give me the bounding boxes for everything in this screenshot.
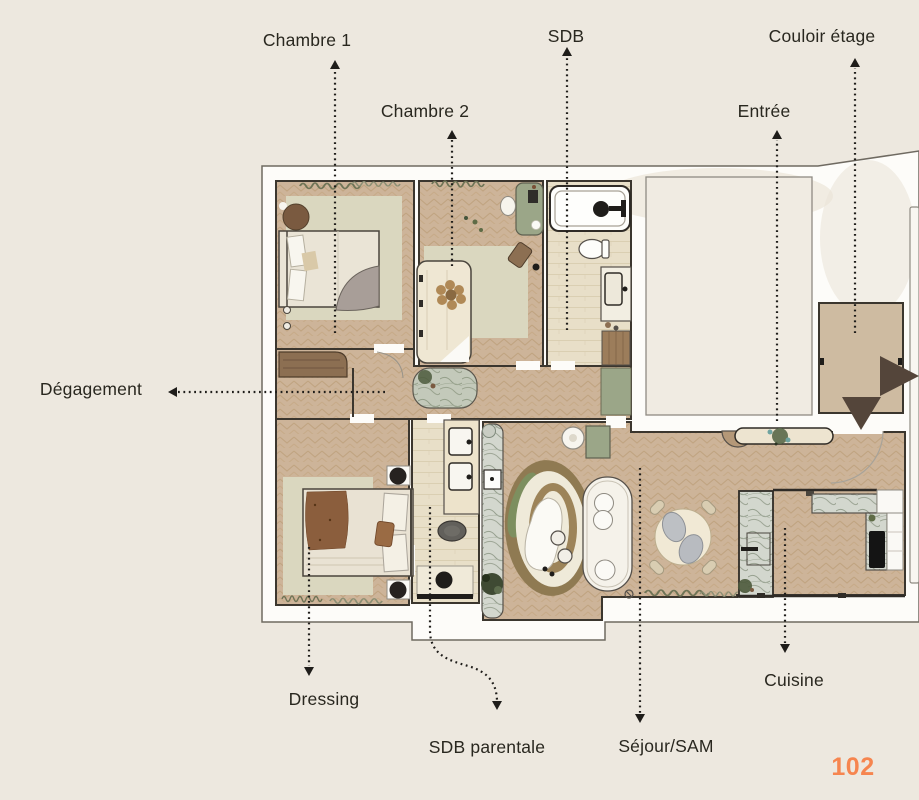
label-sdb-parentale: SDB parentale	[429, 738, 545, 757]
green-cabinet	[586, 426, 610, 458]
label-chambre-2: Chambre 2	[381, 102, 469, 121]
plant	[869, 515, 876, 522]
desk-monitor	[528, 190, 538, 203]
sofa	[583, 477, 632, 591]
label-degagement: Dégagement	[40, 380, 142, 399]
arrow-up-icon	[447, 130, 457, 139]
hall-door-leaf	[910, 207, 919, 583]
toilet	[579, 240, 609, 259]
bed-parentale	[303, 489, 413, 576]
daybed	[417, 261, 471, 363]
counter-top	[812, 494, 877, 513]
white-cabinet	[887, 513, 903, 570]
cooktop	[869, 531, 885, 568]
arrow-down-icon	[304, 667, 314, 676]
handle	[741, 547, 758, 551]
label-sejour-sam: Séjour/SAM	[618, 737, 713, 756]
wall-light	[284, 307, 291, 314]
marble-wall	[481, 424, 503, 618]
stool	[436, 572, 453, 589]
room-couloir-etage-landing	[819, 303, 903, 413]
white-cabinet	[877, 490, 903, 513]
arrow-down-icon	[635, 714, 645, 723]
label-chambre-1: Chambre 1	[263, 31, 351, 50]
plant	[772, 428, 788, 444]
shadow-blob	[820, 160, 916, 316]
wall-light	[284, 323, 291, 330]
arrow-down-icon	[492, 701, 502, 710]
page-number: 102	[831, 753, 874, 782]
label-cuisine: Cuisine	[764, 671, 824, 690]
plant	[418, 370, 432, 384]
label-entree: Entrée	[738, 102, 791, 121]
pillow	[287, 269, 306, 301]
cushion	[374, 521, 394, 547]
entree-furniture	[722, 428, 833, 447]
dining-set	[648, 499, 718, 577]
book-page: Chambre 1 Chambre 2 SDB Couloir étage En…	[0, 0, 919, 800]
desk-chair	[501, 197, 516, 216]
label-dressing: Dressing	[289, 690, 360, 709]
label-sdb: SDB	[548, 27, 585, 46]
stone-bench	[413, 368, 477, 408]
arrow-up-icon	[330, 60, 340, 69]
arrow-left-icon	[168, 387, 177, 397]
bed	[279, 231, 379, 311]
green-nook	[601, 368, 631, 415]
plant	[738, 579, 752, 593]
arrow-up-icon	[772, 130, 782, 139]
double-vanity	[444, 420, 479, 514]
arrow-up-icon	[562, 47, 572, 56]
stairwell-void	[646, 177, 812, 415]
lamp	[390, 582, 407, 599]
wardrobe	[279, 352, 347, 377]
label-couloir-etage: Couloir étage	[769, 27, 876, 46]
dressing-table	[417, 566, 473, 599]
arrow-up-icon	[850, 58, 860, 67]
round-side-table	[283, 204, 309, 230]
arrow-down-icon	[780, 644, 790, 653]
chambre-1-furniture	[279, 182, 402, 330]
vanity-sink	[601, 267, 631, 321]
brown-blanket	[305, 491, 348, 550]
bathtub	[550, 186, 630, 231]
wood-mat	[602, 331, 630, 365]
lamp	[390, 468, 407, 485]
